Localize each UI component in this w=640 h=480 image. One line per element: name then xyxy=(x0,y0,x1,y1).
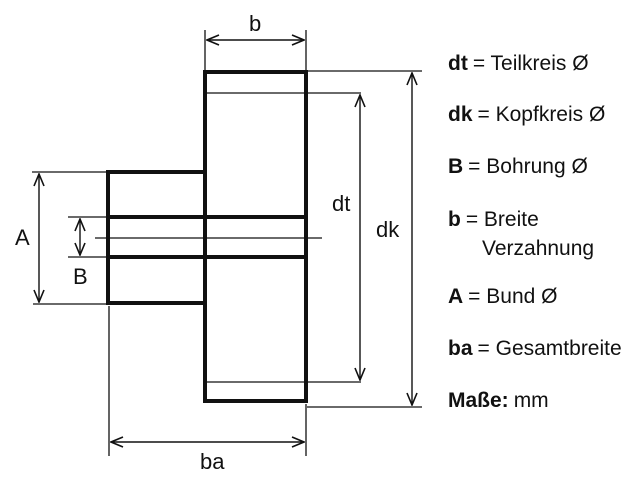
label-dk: dk xyxy=(376,219,399,241)
label-ba: ba xyxy=(200,451,224,473)
legend-term: dt xyxy=(448,52,468,75)
legend-row: ba= Gesamtbreite xyxy=(448,338,622,359)
dimension-b xyxy=(205,30,306,70)
label-a: A xyxy=(15,227,30,249)
legend-definition: = Teilkreis Ø xyxy=(473,52,589,75)
legend-row: dk= Kopfkreis Ø xyxy=(448,104,605,125)
legend-term: Maße: xyxy=(448,389,509,412)
gear-body-outline xyxy=(205,72,306,401)
gear-dimension-diagram: b A B dt dk ba dt= Teilkreis Ø dk= Kopfk… xyxy=(0,0,640,480)
legend-definition: = Bohrung Ø xyxy=(468,155,588,178)
legend-term: dk xyxy=(448,103,473,126)
legend-term: A xyxy=(448,285,463,308)
legend-definition: = Kopfkreis Ø xyxy=(478,103,606,126)
label-dt: dt xyxy=(332,193,350,215)
legend-definition: = Gesamtbreite xyxy=(478,337,622,360)
legend-row: Maße:mm xyxy=(448,390,549,411)
legend-definition: = Breite xyxy=(466,208,539,231)
part-outlines xyxy=(108,72,306,401)
legend-row: A= Bund Ø xyxy=(448,286,557,307)
label-b: b xyxy=(249,13,261,35)
dimension-bore xyxy=(68,217,106,257)
label-bore: B xyxy=(73,266,88,288)
dimension-dk xyxy=(307,71,422,407)
legend-row: dt= Teilkreis Ø xyxy=(448,53,589,74)
legend-row: B= Bohrung Ø xyxy=(448,156,588,177)
legend-row: b= Breite xyxy=(448,209,539,230)
legend-definition: Verzahnung xyxy=(482,237,594,260)
legend-row: Verzahnung xyxy=(482,238,594,259)
legend-term: b xyxy=(448,208,461,231)
legend-definition: = Bund Ø xyxy=(468,285,557,308)
legend-term: B xyxy=(448,155,463,178)
legend-definition: mm xyxy=(514,389,549,412)
legend-term: ba xyxy=(448,337,473,360)
